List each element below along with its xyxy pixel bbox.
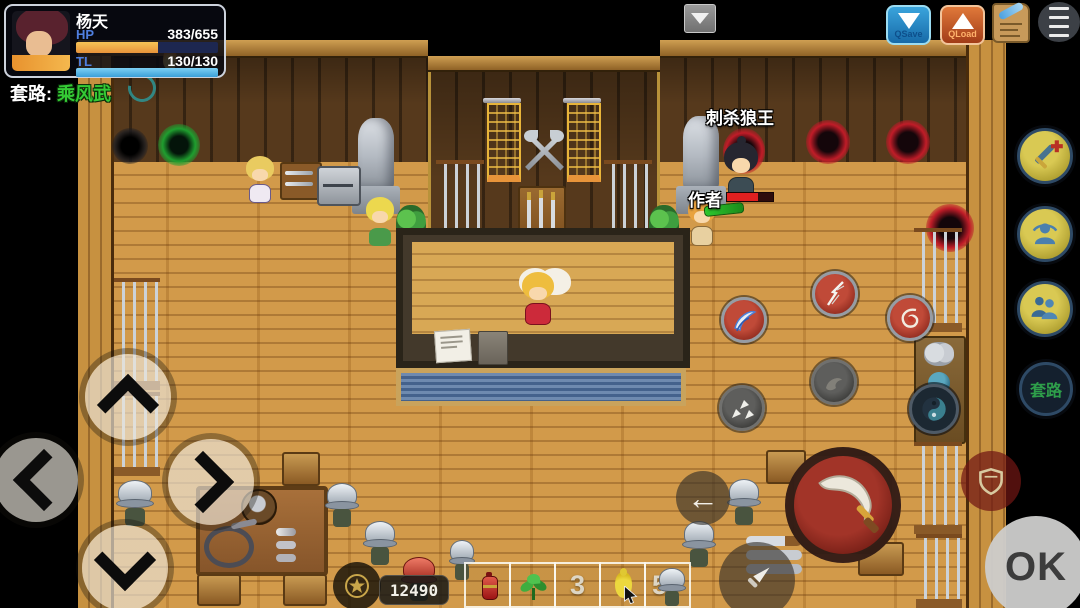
hp-value: 383/655 <box>116 26 218 42</box>
skill-wave-button[interactable] <box>721 297 767 343</box>
dpad-right-button[interactable] <box>168 439 254 525</box>
wave-slash-icon <box>728 304 760 336</box>
taolu-menu-button[interactable]: 套路 <box>1019 362 1073 416</box>
skill-lightning-button[interactable] <box>812 271 858 317</box>
qsave-label: QSave <box>894 30 922 39</box>
dagger-skill-button[interactable] <box>719 542 795 608</box>
money-display: 12490 <box>379 575 449 605</box>
gold-emblem-icon <box>341 570 373 602</box>
sword-plus-icon <box>1026 137 1064 175</box>
combo-label: 套路: <box>10 84 52 104</box>
ok-label: OK <box>1005 545 1067 590</box>
roof-beam-center <box>428 56 660 72</box>
small-table <box>282 452 320 486</box>
lightning-slash-icon <box>819 278 851 310</box>
metal-chest <box>317 166 361 206</box>
left-arrow-icon: ← <box>687 482 719 514</box>
defend-button[interactable] <box>961 451 1021 511</box>
item-slot-3[interactable]: 3 <box>554 562 601 608</box>
player-portrait[interactable] <box>12 11 70 71</box>
menu-icon <box>1049 7 1069 10</box>
game-screen: 刺杀狼王 作者 <box>0 0 1080 608</box>
chevron-down-icon <box>691 13 709 24</box>
red-potion-icon <box>482 576 498 600</box>
item-slot-gourd[interactable] <box>599 562 646 608</box>
qload-label: QLoad <box>948 30 977 39</box>
dark-portal <box>112 128 148 164</box>
yinyang-icon <box>917 392 951 426</box>
combo-status: 套路: 乘风武 <box>10 80 111 106</box>
hp-label: HP <box>76 27 94 42</box>
meditate-icon <box>1027 216 1063 252</box>
taolu-label: 套路 <box>1030 377 1062 401</box>
player-character <box>519 272 557 326</box>
down-chevron-icon <box>94 529 156 591</box>
up-chevron-icon <box>97 374 159 436</box>
dagger-icon <box>737 560 777 600</box>
bench <box>197 574 241 606</box>
hp-bar <box>76 42 218 53</box>
qsave-icon <box>898 13 920 29</box>
dragon-icon <box>818 366 850 398</box>
whip-coil <box>204 526 254 568</box>
quest-name-label: 刺杀狼王 <box>660 104 820 129</box>
left-chevron-icon <box>13 449 75 511</box>
side-wall-left <box>78 56 114 608</box>
shield-icon <box>974 464 1008 498</box>
spear-rack <box>916 534 962 608</box>
npc-soldier <box>363 521 397 565</box>
dpad-left-button[interactable] <box>0 438 78 522</box>
sword-display <box>280 162 322 200</box>
dpad-down-button[interactable] <box>82 525 168 608</box>
tl-bar <box>76 68 218 77</box>
qload-icon <box>952 13 974 29</box>
player-hud-panel: 杨天 HP 383/655 TL 130/130 <box>4 4 226 78</box>
red-portal <box>886 120 930 164</box>
spear-rack <box>914 442 962 534</box>
npc-soldier <box>116 480 154 526</box>
skill-dragon-button[interactable] <box>811 359 857 405</box>
npc-soldier <box>325 483 359 527</box>
meditate-skill-button[interactable] <box>1017 206 1073 262</box>
tl-value: 130/130 <box>116 53 218 69</box>
ammo-shells <box>276 528 296 536</box>
combo-value: 乘风武 <box>57 84 111 104</box>
slot-count: 3 <box>556 570 599 601</box>
skill-swirl-button[interactable] <box>887 295 933 341</box>
green-portal <box>158 124 200 166</box>
arrows-icon <box>726 392 758 424</box>
item-slot-soldier[interactable]: 5 <box>644 562 691 608</box>
paper-sheet <box>434 329 472 363</box>
water-trough <box>396 368 686 406</box>
right-chevron-icon <box>172 451 234 513</box>
skill-yinyang-button[interactable] <box>909 384 959 434</box>
hp-bar-fill <box>76 42 158 53</box>
ok-button[interactable]: OK <box>985 516 1080 608</box>
soldier-unit-icon <box>658 568 686 606</box>
collapse-button[interactable] <box>684 4 716 33</box>
npc-soldier <box>727 479 761 525</box>
statue-name-label: 作者 <box>670 186 740 211</box>
move-left-button[interactable]: ← <box>676 471 730 525</box>
npc-maid <box>243 156 277 204</box>
qload-button[interactable]: QLoad <box>940 5 985 45</box>
menu-button[interactable] <box>1038 2 1080 42</box>
npc-soldier <box>682 521 716 567</box>
item-slot-herb[interactable] <box>509 562 556 608</box>
skill-multiarrow-button[interactable] <box>719 385 765 431</box>
scimitar-icon <box>796 458 891 553</box>
army-badge[interactable] <box>333 562 381 608</box>
bench <box>283 574 327 606</box>
npc-elf-girl <box>363 197 397 247</box>
money-value: 12490 <box>390 581 438 600</box>
crossed-axes <box>522 128 566 178</box>
attack-skill-button[interactable] <box>1017 128 1073 184</box>
book <box>478 331 508 365</box>
two-people-icon <box>1027 291 1063 327</box>
scroll-item-button[interactable] <box>992 3 1030 43</box>
side-wall-right <box>966 40 1006 608</box>
cursor-pointer-icon <box>623 586 638 604</box>
tl-label: TL <box>76 54 92 69</box>
main-attack-button[interactable] <box>785 447 901 563</box>
qsave-button[interactable]: QSave <box>886 5 931 45</box>
green-herb-icon <box>520 574 548 600</box>
tl-bar-fill <box>76 68 218 77</box>
swirl-icon <box>894 302 926 334</box>
dpad-up-button[interactable] <box>85 354 171 440</box>
party-skill-button[interactable] <box>1017 281 1073 337</box>
quill-icon <box>998 1 1025 20</box>
red-banner <box>487 103 521 182</box>
red-banner <box>567 103 601 182</box>
item-slot-potion[interactable] <box>464 562 511 608</box>
